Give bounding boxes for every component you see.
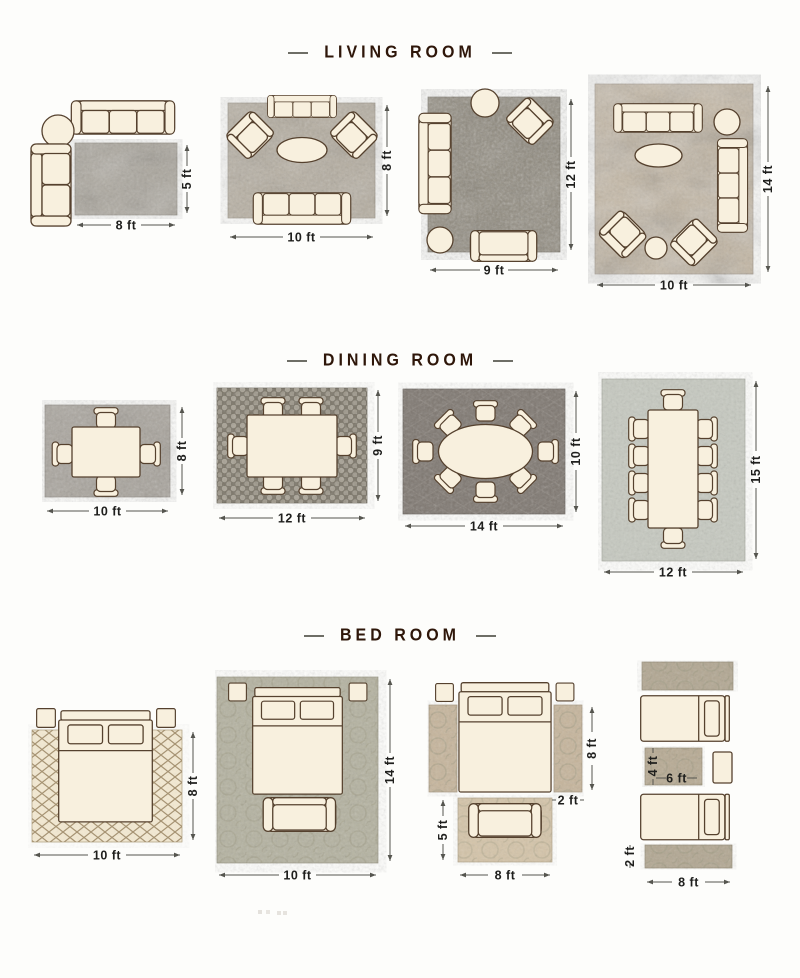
living-room-layout-9x12: 9 ft 12 ft <box>408 80 590 285</box>
svg-text:10 ft: 10 ft <box>283 869 312 883</box>
section-title-bed-room: BED ROOM <box>0 628 800 644</box>
title-dash <box>304 635 324 637</box>
dining-room-layout-14x10: 14 ft 10 ft <box>398 378 588 543</box>
dining-chair <box>697 498 717 522</box>
rug-height-dimension: 5 ft <box>436 800 450 860</box>
title-dash <box>288 52 308 54</box>
svg-text:10 ft: 10 ft <box>660 279 689 293</box>
height-dimension: 8 ft <box>175 407 189 495</box>
twin-bed <box>641 794 730 840</box>
dining-chair <box>697 444 717 468</box>
dining-chair <box>661 390 685 410</box>
width-dimension: 10 ft <box>219 869 376 883</box>
height-dimension: 9 ft <box>371 390 385 501</box>
nightstand <box>436 684 454 702</box>
runner-height-dimension: 2 ft <box>623 845 637 868</box>
dining-chair <box>413 440 433 464</box>
dining-chair <box>629 417 649 441</box>
nightstand <box>37 709 56 728</box>
svg-text:4 ft: 4 ft <box>646 755 660 776</box>
svg-text:2 ft: 2 ft <box>558 794 579 808</box>
dining-table <box>247 415 337 477</box>
sofa <box>71 101 174 134</box>
dining-chair <box>140 442 160 466</box>
loveseat <box>31 144 71 226</box>
bench <box>469 804 542 838</box>
height-dimension: 5 ft <box>180 145 194 213</box>
nightstand <box>556 683 574 701</box>
sofa <box>614 104 703 133</box>
dining-chair <box>661 528 685 548</box>
rug-width-dimension: 8 ft <box>460 869 550 883</box>
section-title-text: DINING ROOM <box>323 352 477 370</box>
svg-text:2 ft: 2 ft <box>623 846 637 867</box>
runner-rug <box>429 705 457 792</box>
svg-text:8 ft: 8 ft <box>186 775 200 796</box>
dining-chair <box>52 442 72 466</box>
faint-marks <box>258 910 262 914</box>
dining-chair <box>629 471 649 495</box>
sofa <box>268 95 337 117</box>
ottoman <box>427 227 453 253</box>
svg-text:5 ft: 5 ft <box>180 168 194 189</box>
svg-text:9 ft: 9 ft <box>484 264 505 278</box>
dining-chair <box>697 417 717 441</box>
svg-text:10 ft: 10 ft <box>569 437 583 466</box>
living-room-layout-8x5: 8 ft 5 ft <box>25 93 220 243</box>
height-dimension: 10 ft <box>569 391 583 512</box>
section-title-living-room: LIVING ROOM <box>0 45 800 61</box>
dining-room-layout-10x8: 10 ft 8 ft <box>42 385 202 530</box>
title-dash <box>476 635 496 637</box>
svg-text:10 ft: 10 ft <box>93 505 122 519</box>
svg-text:10 ft: 10 ft <box>93 849 122 863</box>
width-dimension: 12 ft <box>219 512 365 526</box>
runner-rug <box>642 662 733 690</box>
height-dimension: 12 ft <box>564 99 578 250</box>
dining-chair <box>94 476 118 496</box>
nightstand <box>713 752 732 783</box>
dining-room-layout-12x15: 12 ft 15 ft <box>598 372 783 592</box>
svg-text:8 ft: 8 ft <box>495 869 516 883</box>
coffee-table <box>277 138 327 163</box>
side-table <box>471 89 499 117</box>
svg-text:12 ft: 12 ft <box>278 512 307 526</box>
bed-room-layout-10x14: 10 ft 14 ft <box>215 670 405 885</box>
title-dash <box>287 360 307 362</box>
height-dimension: 8 ft <box>186 732 200 840</box>
svg-text:6 ft: 6 ft <box>666 772 687 786</box>
dining-table <box>439 425 533 479</box>
rug <box>75 143 177 215</box>
sofa <box>253 193 350 224</box>
svg-text:8 ft: 8 ft <box>116 219 137 233</box>
dining-chair <box>474 482 498 502</box>
runner-width-dimension: 8 ft <box>647 876 730 890</box>
dining-chair <box>94 408 118 428</box>
dining-chair <box>629 444 649 468</box>
ottoman <box>645 237 667 259</box>
bed <box>459 683 551 792</box>
width-dimension: 14 ft <box>405 520 563 534</box>
sofa <box>717 139 747 232</box>
nightstand <box>349 683 367 701</box>
dining-chair <box>228 434 248 458</box>
dining-chair <box>474 401 498 421</box>
svg-text:14 ft: 14 ft <box>383 756 397 785</box>
width-dimension: 9 ft <box>430 264 558 278</box>
loveseat <box>470 231 536 262</box>
width-dimension: 12 ft <box>604 566 743 580</box>
runner-rug <box>645 845 732 868</box>
living-room-layout-10x8: 10 ft 8 ft <box>215 85 405 255</box>
width-dimension: 8 ft <box>77 219 175 233</box>
twin-bed <box>641 696 730 742</box>
svg-text:8 ft: 8 ft <box>380 150 394 171</box>
svg-text:9 ft: 9 ft <box>371 435 385 456</box>
dining-table <box>648 410 698 528</box>
svg-text:14 ft: 14 ft <box>470 520 499 534</box>
svg-text:5 ft: 5 ft <box>436 819 450 840</box>
bed-room-layout-twin-beds: 4 ft 6 ft 2 ft 8 ft <box>620 650 785 895</box>
runner-width-dimension: 2 ft <box>552 794 584 808</box>
dining-chair <box>538 440 558 464</box>
dining-room-layout-12x9: 12 ft 9 ft <box>213 378 388 538</box>
dining-chair <box>697 471 717 495</box>
height-dimension: 14 ft <box>383 679 397 861</box>
height-dimension: 8 ft <box>380 105 394 216</box>
svg-text:10 ft: 10 ft <box>287 231 316 245</box>
svg-text:14 ft: 14 ft <box>761 165 775 194</box>
runner-height-dimension: 8 ft <box>585 707 599 790</box>
nightstand <box>229 683 247 701</box>
dining-chair <box>336 434 356 458</box>
coffee-table <box>635 144 682 167</box>
width-dimension: 10 ft <box>230 231 373 245</box>
bench <box>263 798 336 832</box>
dining-chair <box>629 498 649 522</box>
width-dimension: 10 ft <box>47 505 168 519</box>
side-table <box>42 115 74 147</box>
bed <box>253 688 343 794</box>
sofa <box>419 113 451 213</box>
runner-rug <box>554 705 582 792</box>
svg-text:8 ft: 8 ft <box>678 876 699 890</box>
width-dimension: 10 ft <box>34 849 180 863</box>
rug-size-guide: LIVING ROOM DINING ROOM BED ROOM 8 ft <box>0 0 800 978</box>
living-room-layout-10x14: 10 ft 14 ft <box>588 72 788 307</box>
width-dimension: 10 ft <box>597 279 751 293</box>
height-dimension: 15 ft <box>749 381 763 559</box>
nightstand <box>157 709 176 728</box>
bed-room-layout-10x8: 10 ft 8 ft <box>28 700 208 870</box>
bed-room-layout-runners: 8 ft 2 ft 5 ft 8 ft <box>425 655 615 890</box>
svg-text:8 ft: 8 ft <box>585 738 599 759</box>
dining-table <box>72 427 140 477</box>
svg-text:8 ft: 8 ft <box>175 440 189 461</box>
section-title-text: BED ROOM <box>340 627 460 645</box>
section-title-text: LIVING ROOM <box>324 44 476 62</box>
height-dimension: 14 ft <box>761 86 775 272</box>
title-dash <box>493 360 513 362</box>
section-title-dining-room: DINING ROOM <box>0 353 800 369</box>
svg-text:12 ft: 12 ft <box>564 160 578 189</box>
side-table <box>714 109 740 135</box>
title-dash <box>492 52 512 54</box>
bed <box>59 711 153 822</box>
svg-text:12 ft: 12 ft <box>659 566 688 580</box>
svg-text:15 ft: 15 ft <box>749 455 763 484</box>
